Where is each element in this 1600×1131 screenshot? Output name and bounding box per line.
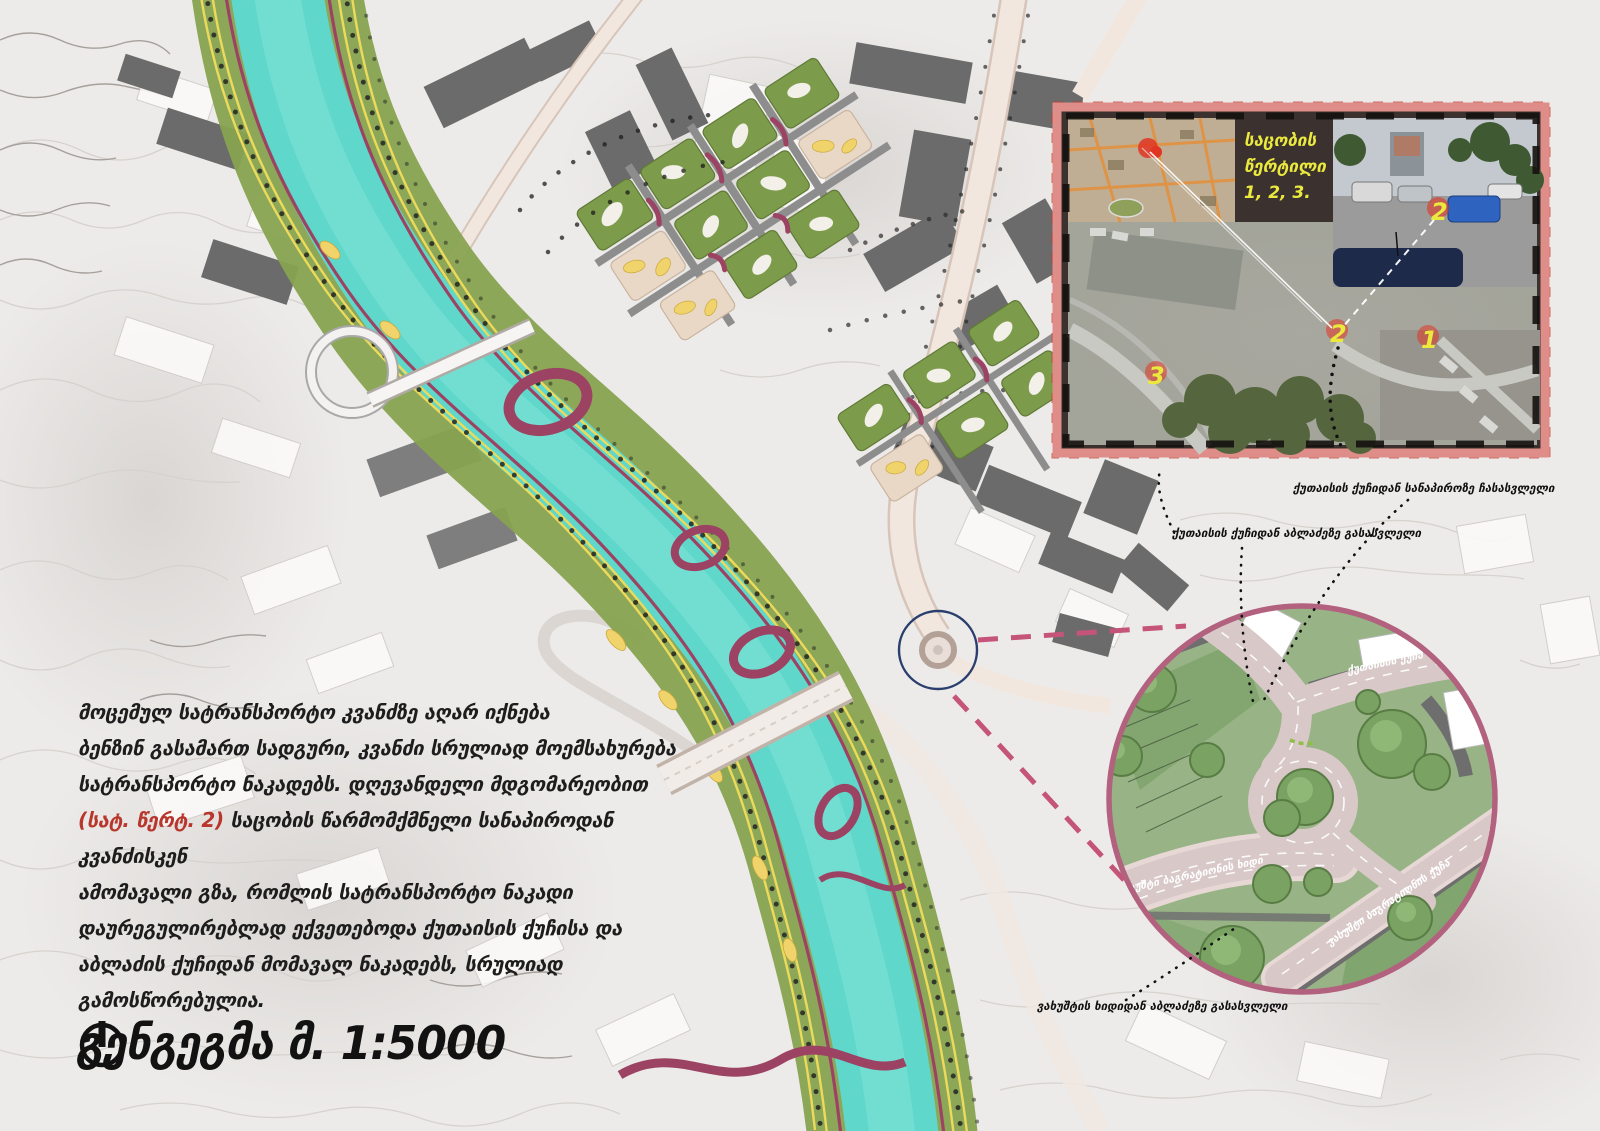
highlight-reference: (სატ. წერტ. 2): [78, 808, 224, 832]
description-line: გამოსწორებულია.: [78, 982, 678, 1018]
street-photo: 2: [1333, 118, 1544, 287]
north-arrow-icon: [76, 1018, 128, 1070]
description-text: მოცემულ სატრანსპორტო კვანძზე აღარ იქნება…: [78, 694, 678, 1018]
description-line: მოცემულ სატრანსპორტო კვანძზე აღარ იქნება: [78, 694, 678, 730]
description-line: ბენზინ გასამართ სადგური, კვანძი სრულიად …: [78, 730, 678, 766]
sheet-title-row: გენგეგმა მ. 1:5000: [76, 1018, 505, 1069]
callout-riverside-descent: ქუთაისის ქუჩიდან სანაპიროზე ჩასასვლელი: [1293, 481, 1554, 495]
description-line: აბლაძის ქუჩიდან მომავალ ნაკადებს, სრულია…: [78, 946, 678, 982]
caption-line-2: წერტილი: [1244, 157, 1327, 177]
description-line: სატრანსპორტო ნაკადებს. დღევანდელი მდგომა…: [78, 766, 678, 802]
congestion-inset-panel: 2 1 3 საცობის წერტილი 1, 2, 3.: [1053, 103, 1549, 457]
marker-1: 1: [1421, 326, 1438, 354]
sheet-title: გენგეგმა მ. 1:5000: [76, 1016, 505, 1070]
caption-line-1: საცობის: [1244, 131, 1317, 151]
marker-3: 3: [1148, 362, 1165, 390]
caption-line-3: 1, 2, 3.: [1244, 183, 1311, 203]
satellite-map: [1068, 118, 1235, 222]
masterplan-sheet: 2 1 3 საცობის წერტილი 1, 2, 3.: [0, 0, 1600, 1131]
description-line-highlight: (სატ. წერტ. 2) საცობის წარმომქმნელი სანა…: [78, 802, 678, 874]
description-line: დაურეგულირებლად ექვეთებოდა ქუთაისის ქუჩი…: [78, 910, 678, 946]
marker-2: 2: [1330, 320, 1347, 348]
inset-caption: საცობის წერტილი 1, 2, 3.: [1238, 118, 1330, 222]
callout-abladze-exit: ქუთაისის ქუჩიდან აბლაძეზე გასასვლელი: [1172, 526, 1421, 540]
description-line: ამომავალი გზა, რომლის სატრანსპორტო ნაკად…: [78, 874, 678, 910]
callout-bridge-exit: ვახუშტის ხიდიდან აბლაძეზე გასასვლელი: [1037, 999, 1287, 1013]
